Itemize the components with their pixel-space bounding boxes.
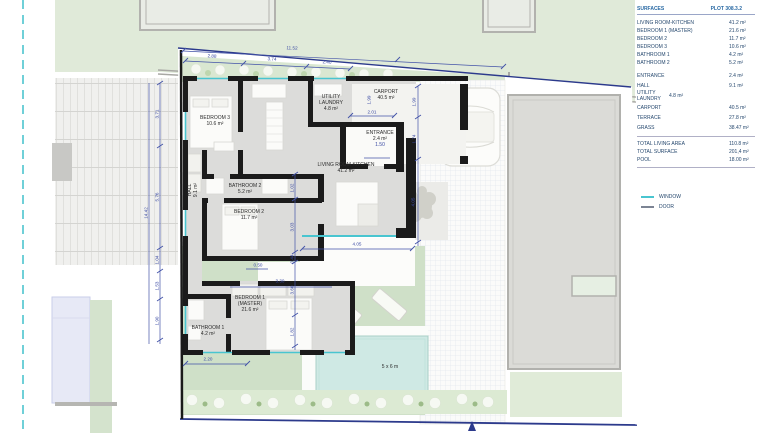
table-row: BEDROOM 1 (MASTER)21.6 m² [637, 27, 755, 35]
room-label-utility: UTILITYLAUNDRY4.8 m² [319, 94, 343, 112]
dim-label: 0.44 [290, 255, 295, 264]
table-row: BATHROOM 14.2 m² [637, 51, 755, 59]
neighbor-building-top-left [140, 0, 275, 30]
window-line-icon [641, 196, 654, 198]
dim-label: 1.82 [290, 328, 295, 337]
neighbor-roof-left [55, 78, 178, 265]
dim-label: 4.05 [353, 242, 362, 247]
dim-label: 1.53 [155, 282, 160, 291]
table-row: CARPORT40.5 m² [637, 104, 755, 112]
dim-label: 1.02 [290, 184, 295, 193]
table-row: BATHROOM 25.2 m² [637, 59, 755, 67]
total-row: TOTAL LIVING AREA110.8 m² [637, 140, 755, 148]
room-label-bedroom1: BEDROOM 1(MASTER)21.6 m² [235, 295, 265, 313]
dim-label: 4.05 [411, 198, 416, 207]
totals-box: TOTAL LIVING AREA110.8 m² TOTAL SURFACE2… [637, 136, 755, 168]
surfaces-panel: SURFACES PLOT 308.3.2 LIVING ROOM-KITCHE… [637, 4, 755, 168]
room-label-living: LIVING ROOM-KITCHEN41.2 m² [318, 162, 375, 174]
dim-label: 3.71 [155, 110, 160, 119]
neighbor-building-right [508, 95, 620, 369]
table-row: LIVING ROOM-KITCHEN41.2 m² [637, 19, 755, 27]
table-row: TERRACE27.8 m² [637, 114, 755, 122]
table-row: HALL9.1 m² [637, 82, 755, 90]
total-row: POOL18.00 m² [637, 156, 755, 164]
dim-label: 5.76 [155, 193, 160, 202]
legend-door: DOOR [641, 202, 681, 212]
dim-label: 1.74 [412, 135, 417, 144]
kitchen-counter [252, 84, 286, 98]
table-row: UTILITY LAUNDRY4.8 m² [637, 90, 755, 102]
room-label-hall: HALL9.1 m² [187, 183, 199, 197]
dim-label: 1.99 [412, 98, 417, 107]
bath2-fixtures [206, 178, 224, 194]
dim-label: 11.52 [286, 45, 297, 51]
neighbor-pool-left [52, 297, 90, 403]
dim-label: 1.99 [367, 96, 372, 105]
dresser [214, 142, 234, 151]
table-row: BEDROOM 211.7 m² [637, 35, 755, 43]
dim-label: 2.20 [204, 357, 213, 362]
table-row: ENTRANCE2.4 m² [637, 72, 755, 80]
dim-label: 3.60 [290, 286, 295, 295]
room-label-bedroom3: BEDROOM 310.6 m² [200, 115, 230, 127]
bath1-fixtures [188, 300, 204, 320]
dim-label: 3.30 [276, 279, 285, 284]
surfaces-title: SURFACES [637, 6, 664, 12]
plot-id: PLOT 308.3.2 [711, 6, 755, 12]
dim-label: 0.50 [254, 263, 263, 268]
dim-label: 3.03 [290, 223, 295, 232]
dim-label: 1.90 [155, 317, 160, 326]
room-label-bedroom2: BEDROOM 211.7 m² [234, 209, 264, 221]
legend-window: WINDOW [641, 192, 681, 202]
table-row: GRASS38.47 m² [637, 124, 755, 132]
room-label-carport: CARPORT40.5 m² [374, 89, 398, 101]
dim-label: 14.42 [144, 207, 149, 219]
legend: WINDOW DOOR [641, 192, 681, 212]
neighbor-context-right [508, 95, 622, 417]
table-row: BEDROOM 310.6 m² [637, 43, 755, 51]
dim-label: 2.01 [368, 110, 377, 115]
room-label-bathroom2: BATHROOM 25.2 m² [229, 183, 262, 195]
dim-label: 1.04 [155, 256, 160, 265]
dim-label: 3.74 [267, 56, 276, 61]
site-plan-sheet: BEDROOM 310.6 m² UTILITYLAUNDRY4.8 m² CA… [0, 0, 770, 433]
dim-label: 2.40 [322, 59, 331, 64]
room-label-bathroom1: BATHROOM 14.2 m² [192, 325, 225, 337]
total-row: TOTAL SURFACE201,4 m² [637, 148, 755, 156]
dim-label: 2.88 [207, 53, 216, 58]
room-label-entrance: ENTRANCE2.4 m²1.50 [366, 130, 394, 148]
pool-label: 5 x 6 m [382, 364, 398, 370]
surfaces-header: SURFACES PLOT 308.3.2 [637, 4, 755, 15]
door-line-icon [641, 206, 654, 208]
